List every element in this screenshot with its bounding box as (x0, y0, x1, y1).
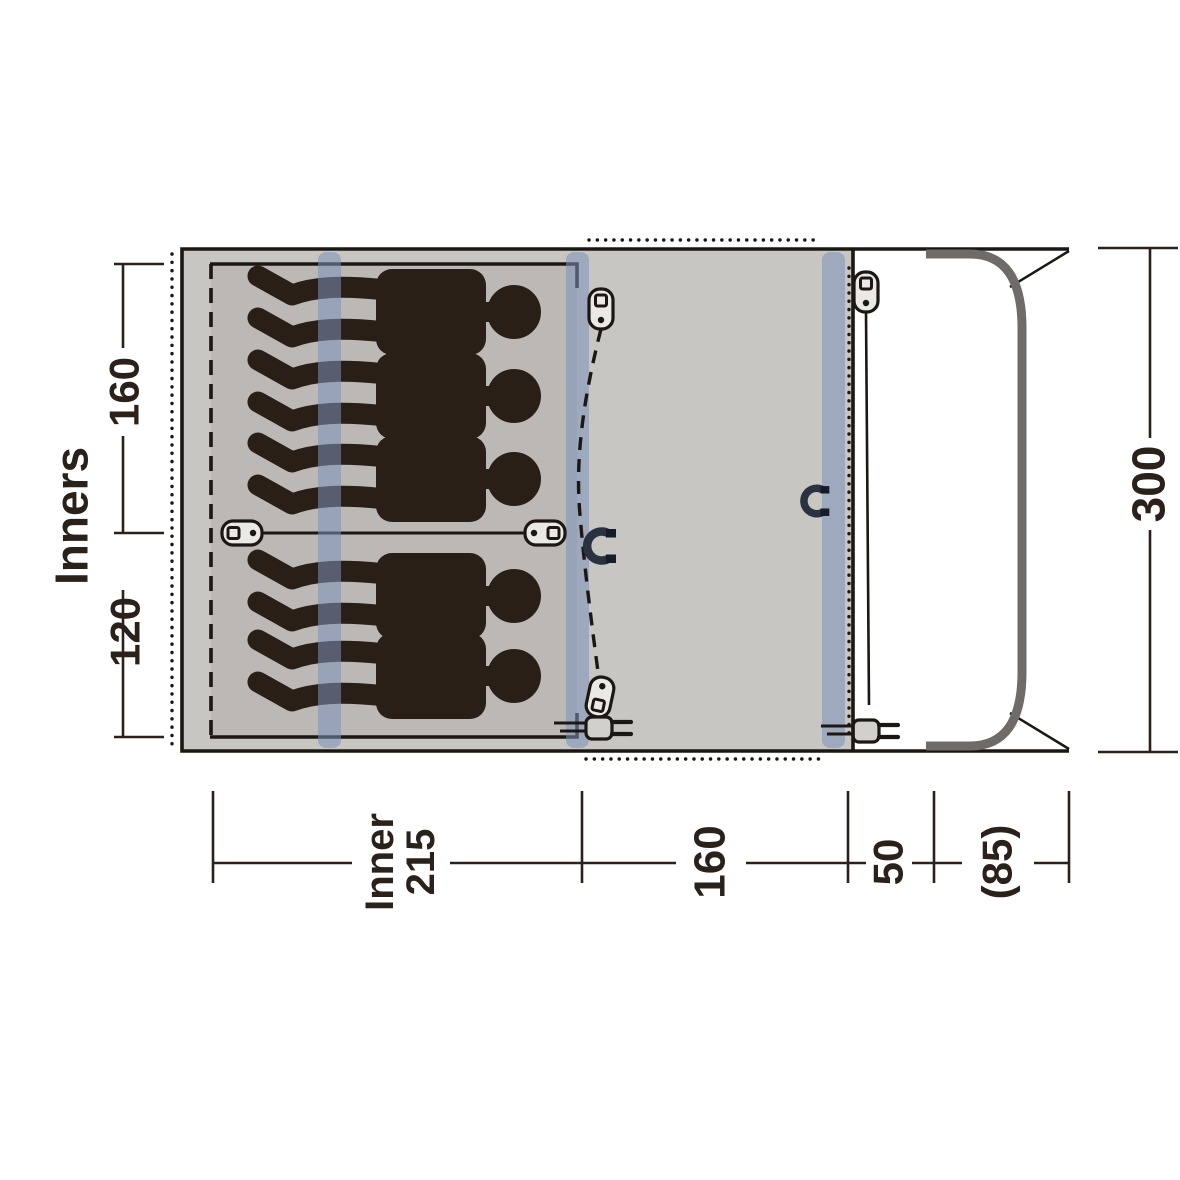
dim-label-inner-215-line2: 215 (401, 813, 442, 911)
dim-bottom (213, 791, 1069, 883)
dim-label-inners: Inners (49, 447, 96, 585)
zipper-pull-icon (222, 521, 262, 545)
zipper-pull-icon (525, 521, 565, 545)
floorplan-svg (0, 0, 1180, 1180)
pole-stripe (822, 252, 845, 748)
dim-label-inner-215: Inner 215 (360, 813, 442, 911)
zipper-pull-icon (589, 289, 613, 329)
dim-label-left-160: 160 (104, 357, 147, 427)
tent-floorplan-diagram: Inners 160 120 300 Inner 215 160 50 (85) (0, 0, 1180, 1180)
zipper-pull-icon (854, 272, 878, 312)
pole-stripe (318, 252, 341, 748)
porch-door-zip-line (866, 313, 869, 705)
dim-label-right-300: 300 (1126, 446, 1173, 523)
porch-pole (926, 254, 1022, 746)
pole-stripe (566, 252, 589, 748)
dim-label-left-120: 120 (105, 597, 148, 667)
dim-label-bottom-85: (85) (977, 825, 1020, 900)
dim-label-inner-215-line1: Inner (360, 813, 401, 911)
dim-label-bottom-50: 50 (868, 839, 911, 886)
dim-label-bottom-160: 160 (689, 825, 734, 898)
